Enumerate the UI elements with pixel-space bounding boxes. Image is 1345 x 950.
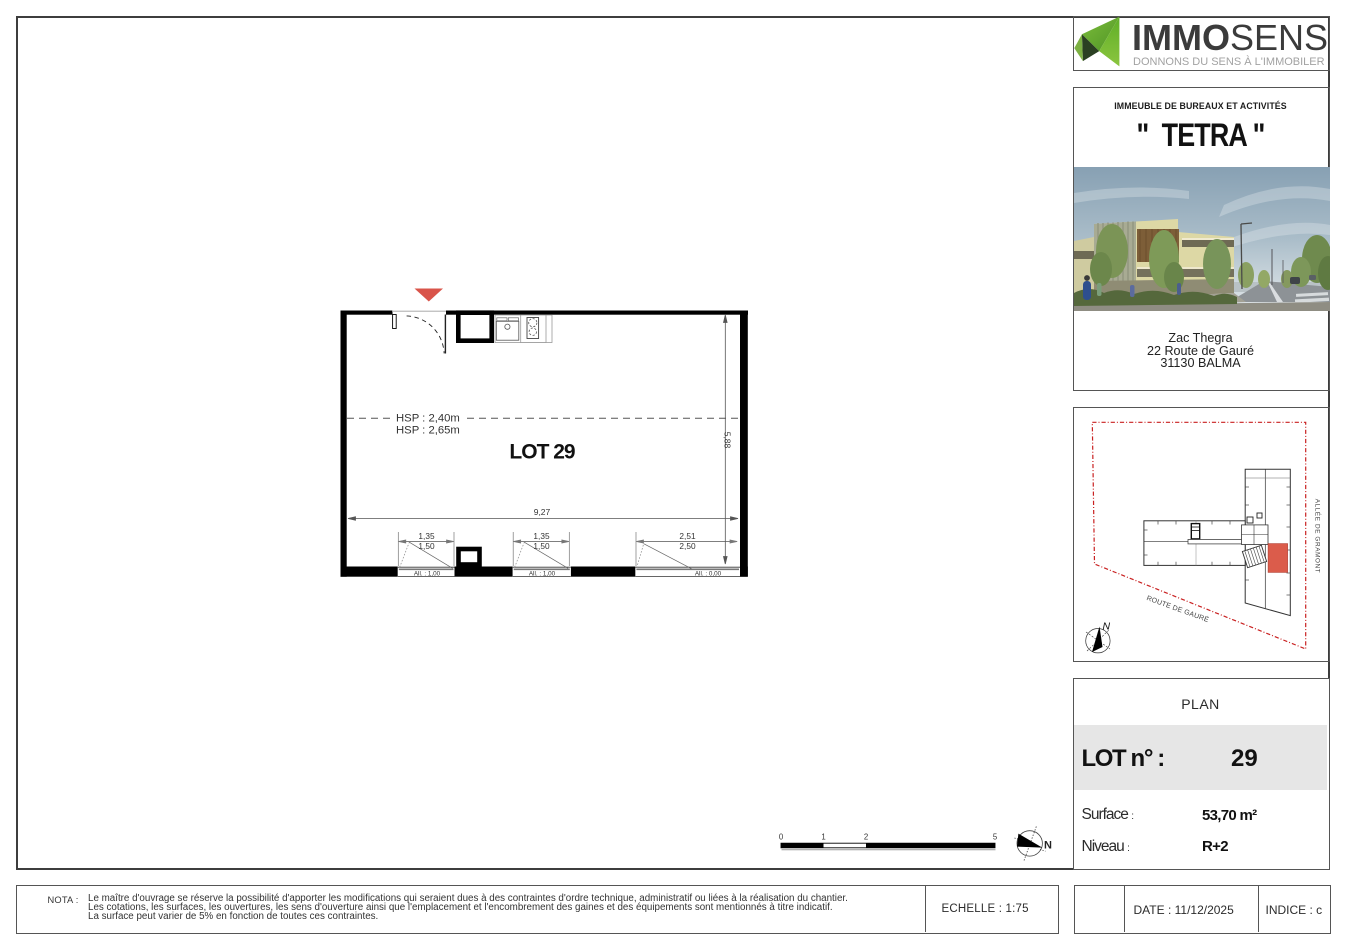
svg-text:LOT 29: LOT 29	[509, 441, 575, 464]
svg-text:N: N	[1103, 621, 1111, 633]
svg-text:5,88: 5,88	[723, 432, 733, 449]
svg-text:HSP : 2,40m: HSP : 2,40m	[396, 413, 460, 425]
svg-text:2,51: 2,51	[679, 531, 696, 541]
svg-text:HSP : 2,65m: HSP : 2,65m	[396, 425, 460, 437]
svg-text:5: 5	[993, 833, 998, 842]
svg-text:1,50: 1,50	[418, 541, 435, 551]
svg-text:ROUTE DE GAURÉ: ROUTE DE GAURÉ	[1145, 593, 1210, 624]
svg-text:All. : 1,00: All. : 1,00	[414, 571, 441, 578]
svg-text:All. : 1,00: All. : 1,00	[529, 571, 556, 578]
svg-text:1: 1	[821, 833, 825, 842]
svg-text:9,27: 9,27	[534, 507, 551, 517]
svg-text:All. : 0,00: All. : 0,00	[695, 571, 722, 578]
svg-text:0: 0	[779, 833, 784, 842]
svg-text:ALLÉE DE GRAMONT: ALLÉE DE GRAMONT	[1314, 499, 1323, 574]
svg-text:2,50: 2,50	[679, 541, 696, 551]
svg-text:2: 2	[864, 833, 868, 842]
svg-text:1,50: 1,50	[533, 541, 550, 551]
svg-text:N: N	[1044, 839, 1052, 851]
svg-text:1,35: 1,35	[418, 531, 435, 541]
svg-text:1,35: 1,35	[533, 531, 550, 541]
